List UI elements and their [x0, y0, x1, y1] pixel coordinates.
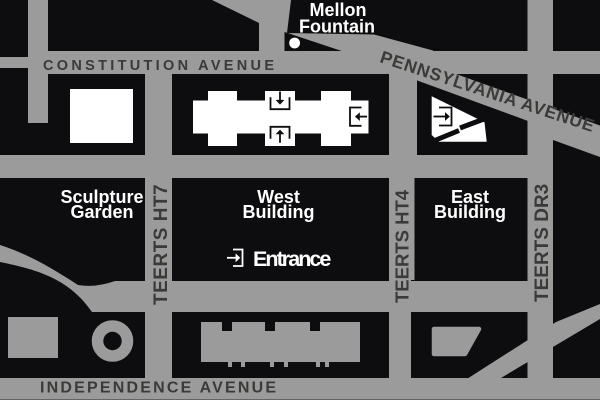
svg-text:Entrance: Entrance — [253, 247, 331, 271]
svg-text:INDEPENDENCE AVENUE: INDEPENDENCE AVENUE — [40, 380, 278, 397]
svg-text:TEERTS HT4: TEERTS HT4 — [391, 189, 412, 303]
svg-text:Building: Building — [434, 202, 506, 222]
svg-text:TEERTS DR3: TEERTS DR3 — [532, 184, 553, 302]
svg-text:Fountain: Fountain — [299, 17, 375, 37]
svg-text:TEERTS HT7: TEERTS HT7 — [151, 184, 172, 305]
svg-text:Building: Building — [243, 202, 315, 222]
svg-text:CONSTITUTION AVENUE: CONSTITUTION AVENUE — [43, 58, 277, 74]
svg-text:Garden: Garden — [70, 202, 133, 222]
